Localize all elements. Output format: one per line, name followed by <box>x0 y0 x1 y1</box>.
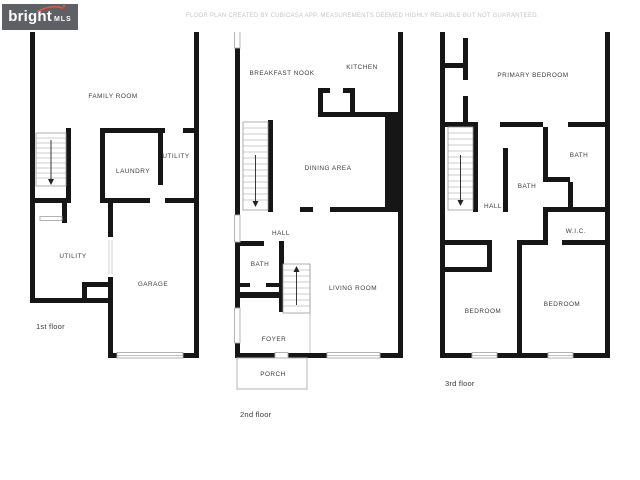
floor2-staircase-up <box>283 264 310 353</box>
room-label-laundry: LAUNDRY <box>116 168 150 175</box>
room-label-family-room: FAMILY ROOM <box>88 93 137 100</box>
room-label-dining-area: DINING AREA <box>305 165 352 172</box>
room-label-porch: PORCH <box>260 371 286 378</box>
logo-swoosh-icon <box>35 4 67 14</box>
room-label-hall-2nd: HALL <box>272 230 290 237</box>
room-label-foyer: FOYER <box>262 336 287 343</box>
room-label-breakfast-nook: BREAKFAST NOOK <box>249 70 314 77</box>
room-label-garage: GARAGE <box>138 281 168 288</box>
room-label-bath-center: BATH <box>518 183 537 190</box>
room-label-wic: W.I.C. <box>566 228 586 235</box>
floor-plan-1st: FAMILY ROOM LAUNDRY UTILITY UTILITY GARA… <box>30 10 199 359</box>
room-label-bedroom-left: BEDROOM <box>465 308 502 315</box>
room-label-kitchen: KITCHEN <box>346 64 378 71</box>
floor-label-2nd: 2nd floor <box>240 410 272 419</box>
room-label-hall-3rd: HALL <box>484 203 502 210</box>
brightmls-logo: brightMLS <box>2 4 78 30</box>
room-label-primary-bedroom: PRIMARY BEDROOM <box>497 72 568 79</box>
floor-label-1st: 1st floor <box>36 322 65 331</box>
room-label-utility-lower: UTILITY <box>59 253 87 260</box>
floor3-staircase <box>448 127 473 210</box>
disclaimer-text: FLOOR PLAN CREATED BY CUBICASA APP. MEAS… <box>186 13 539 19</box>
floor-plan-2nd: BREAKFAST NOOK KITCHEN DINING AREA HALL … <box>235 10 404 420</box>
room-label-utility-upper: UTILITY <box>162 153 190 160</box>
room-label-bath-2nd: BATH <box>251 261 270 268</box>
footer-bar: brightMLS FLOOR PLAN CREATED BY CUBICASA… <box>0 0 640 32</box>
floor1-staircase <box>36 133 66 186</box>
room-label-bedroom-right: BEDROOM <box>544 301 581 308</box>
floor-plans-canvas: FAMILY ROOM LAUNDRY UTILITY UTILITY GARA… <box>0 0 640 448</box>
room-label-living-room: LIVING ROOM <box>329 285 377 292</box>
floor-plan-3rd: PRIMARY BEDROOM BATH BATH HALL W.I.C. BE… <box>440 10 610 389</box>
floor-label-3rd: 3rd floor <box>445 379 475 388</box>
brightmls-logo-text: brightMLS <box>8 8 71 26</box>
room-label-bath-right: BATH <box>570 152 589 159</box>
floor2-staircase-down <box>243 122 268 210</box>
logo-mls-text: MLS <box>54 16 72 23</box>
